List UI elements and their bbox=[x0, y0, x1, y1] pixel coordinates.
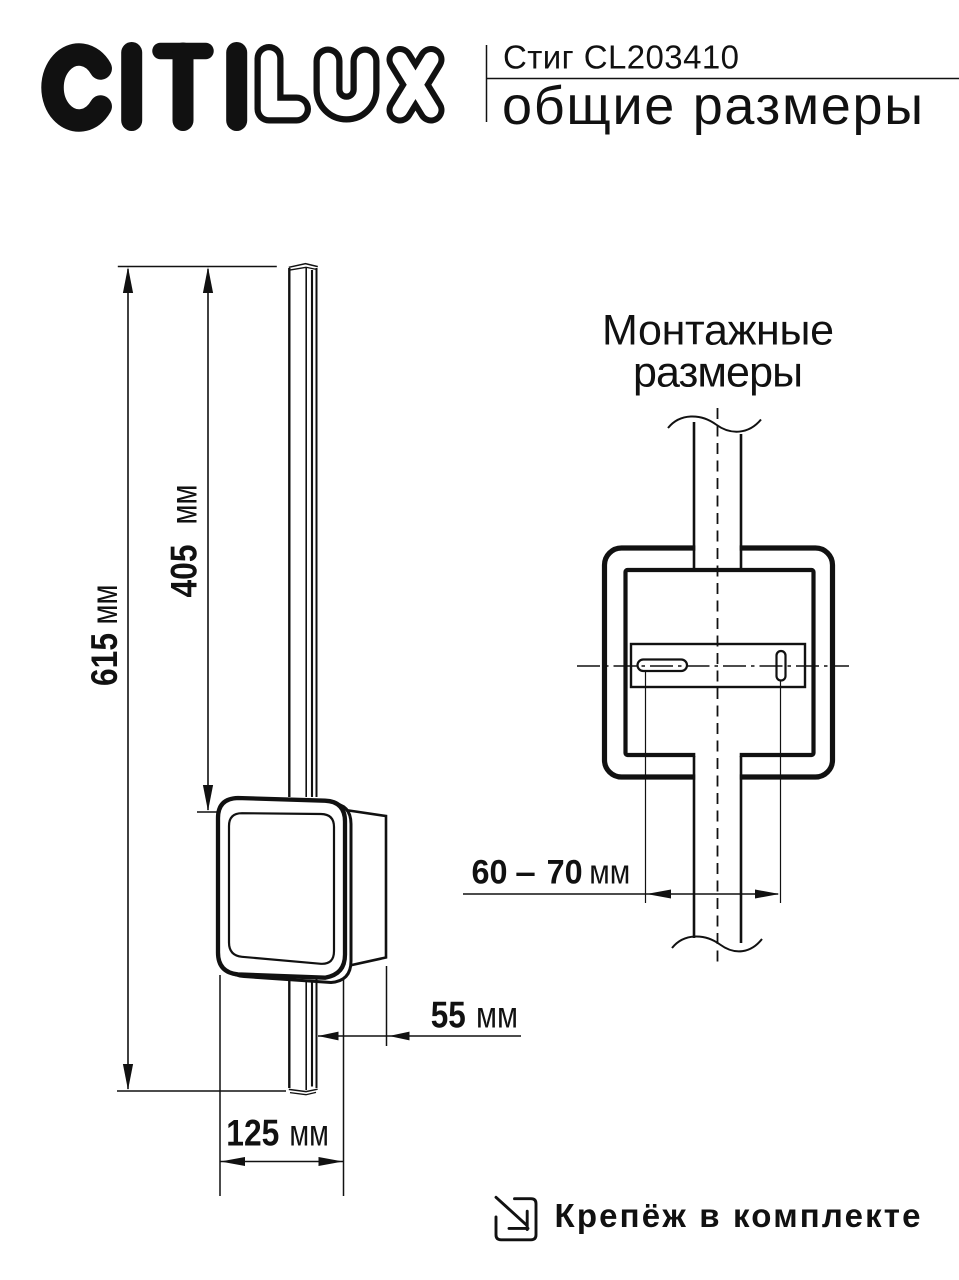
svg-text:размеры: размеры bbox=[633, 349, 803, 397]
svg-text:Монтажные: Монтажные bbox=[602, 307, 834, 355]
svg-text:125мм: 125мм bbox=[226, 1113, 329, 1154]
svg-text:Крепёж в комплекте: Крепёж в комплекте bbox=[555, 1197, 921, 1234]
svg-text:615мм: 615мм bbox=[84, 585, 125, 687]
svg-text:60–70мм: 60–70мм bbox=[472, 854, 631, 892]
svg-text:Стиг CL203410: Стиг CL203410 bbox=[503, 39, 739, 76]
